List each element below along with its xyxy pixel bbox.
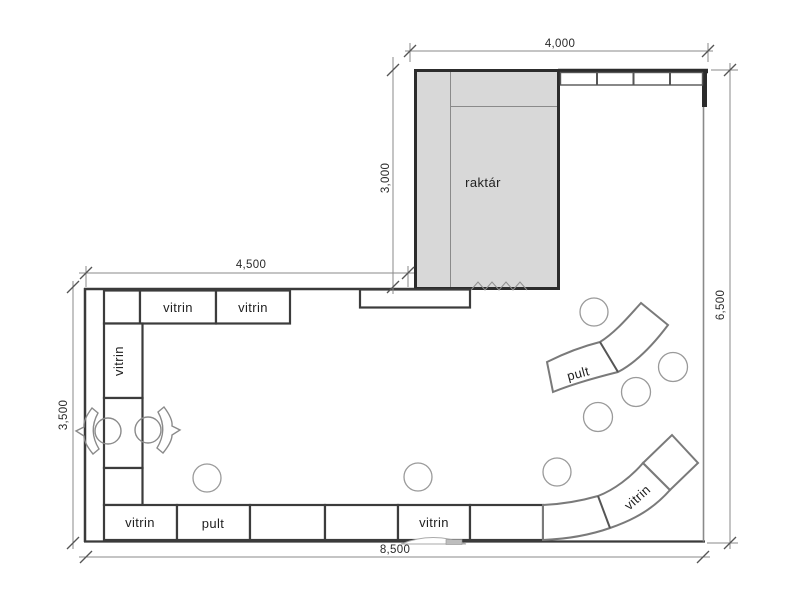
case-label: vitrin [238,300,268,315]
dimension-total-width: 8,500 [79,544,710,563]
stools [193,298,688,492]
display-cases-left-column: vitrin [104,324,143,506]
dimension-text: 6,500 [715,290,727,320]
dimension-top-width: 4,000 [404,38,714,62]
storage-room-label: raktár [465,175,501,190]
wall-shelf-row [561,73,703,86]
dimension-text: 4,000 [545,38,575,50]
stool [622,378,651,407]
case-label: vitrin [111,346,126,376]
entrance-door-leaf [446,540,462,545]
dimension-left-height: 3,500 [58,281,79,549]
storage-room: raktár [416,71,559,291]
stool [584,403,613,432]
display-cases-bottom-row: vitrin pult vitrin [104,505,543,540]
stool [543,458,571,486]
dimension-text: 4,500 [236,259,266,271]
storage-pass-counter [360,290,470,308]
case-corner-cell [104,291,140,324]
stool [404,463,432,491]
dimension-storage-depth: 3,000 [380,57,399,294]
dimension-text: 8,500 [380,544,410,556]
dimension-text: 3,000 [380,163,392,193]
stool [193,464,221,492]
case-label: vitrin [419,515,449,530]
display-cases-top-row: vitrin vitrin [104,291,290,324]
wall-shelf-outline [561,73,703,86]
floor-plan: raktár vitrin vitrin vitrin vitrin pult … [0,0,800,610]
case-cell [250,505,325,540]
case-cell [104,468,143,505]
stool [580,298,608,326]
dimension-left-width: 4,500 [79,259,414,287]
case-cell [470,505,543,540]
case-cell [104,398,143,468]
case-label: pult [202,516,225,531]
dimension-right-height: 6,500 [707,63,738,549]
curved-display-outline [543,463,670,540]
dimension-text: 3,500 [58,400,70,430]
stool [659,353,688,382]
curved-display-vitrin: vitrin [543,435,698,540]
case-label: vitrin [125,515,155,530]
floor-plan-drawing: raktár vitrin vitrin vitrin vitrin pult … [0,0,800,610]
case-cell [325,505,398,540]
case-label: vitrin [163,300,193,315]
